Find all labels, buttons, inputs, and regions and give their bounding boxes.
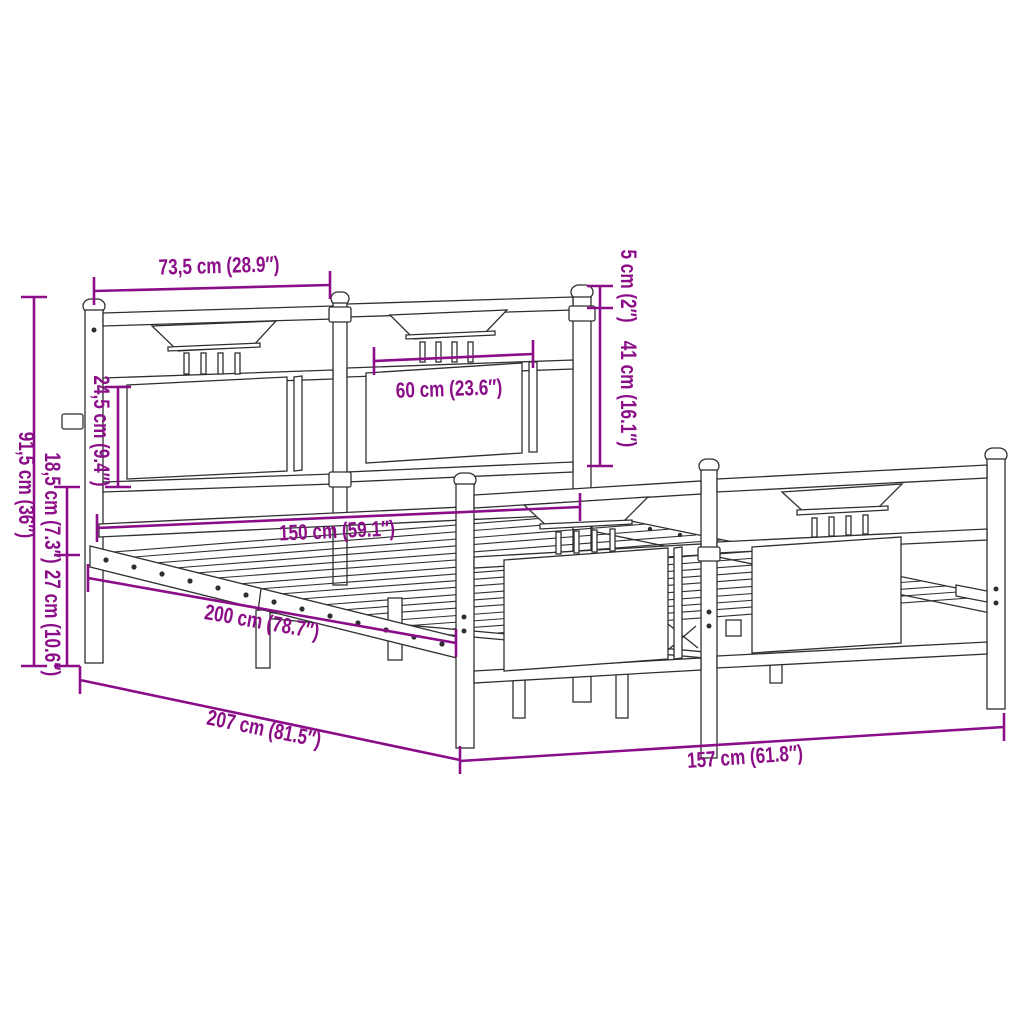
dim-label-post-top-to-rail: 5 cm (2″)	[617, 249, 639, 322]
bed-frame-dimension-diagram: 73,5 cm (28.9″) 5 cm (2″) 41 cm (16.1″) …	[0, 0, 1024, 1024]
dim-label-mattress-width: 150 cm (59.1″)	[279, 517, 396, 544]
support-bracket	[726, 620, 741, 636]
dim-label-under-bed-clearance: 27 cm (10.6″)	[41, 570, 63, 676]
dim-label-headboard-section-width: 73,5 cm (28.9″)	[158, 253, 279, 278]
headboard-panel-left-strip	[294, 376, 302, 471]
middle-post-bracket-top	[329, 307, 351, 322]
footboard-right-post	[987, 459, 1005, 709]
footboard-panel-left	[504, 548, 668, 671]
support-leg	[616, 668, 628, 718]
headboard-panel-left	[127, 377, 287, 479]
middle-post-bracket-bottom	[329, 472, 351, 487]
footboard-middle-bracket	[698, 547, 720, 561]
headboard-decor-right	[390, 310, 507, 362]
dim-label-panel-width: 60 cm (23.6″)	[395, 376, 502, 402]
bed-frame-line-drawing	[0, 0, 1024, 1024]
footboard-decor-right	[782, 484, 902, 537]
dim-label-total-height: 91,5 cm (36″)	[15, 432, 37, 538]
dim-label-headboard-panel-height: 24,5 cm (9.4″)	[90, 375, 112, 486]
left-side-rail	[90, 546, 461, 659]
headboard-panel-right-strip	[529, 362, 537, 452]
dim-label-rail-section-height: 18,5 cm (7.3″)	[41, 452, 63, 563]
footboard	[454, 448, 1007, 758]
footboard-panel-right	[752, 537, 901, 653]
footboard-panel-left-strip	[674, 547, 682, 659]
left-post-side-bracket	[62, 414, 83, 429]
dim-label-headboard-above-base: 41 cm (16.1″)	[617, 341, 639, 447]
headboard-decor-left	[152, 321, 276, 374]
